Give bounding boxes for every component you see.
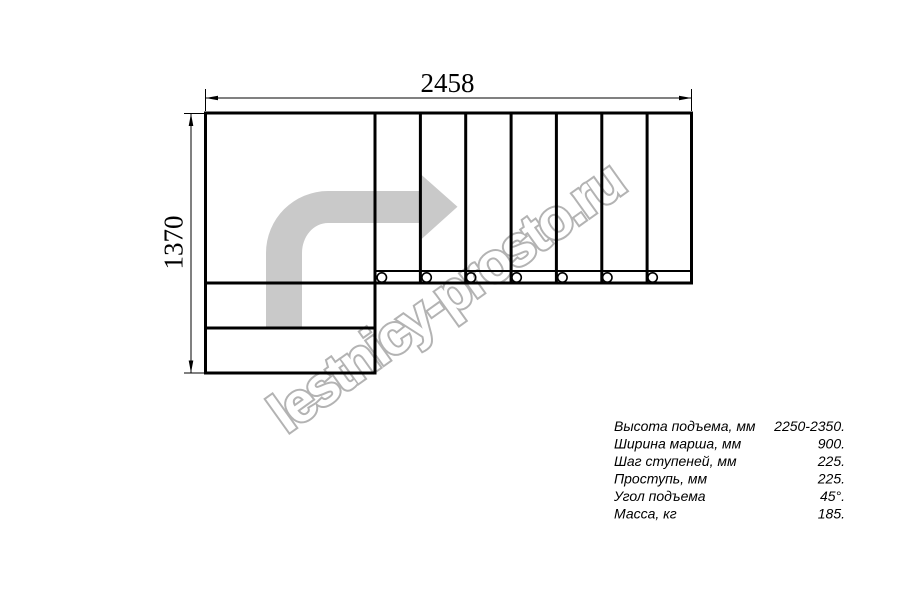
svg-text:Масса, кг: Масса, кг	[614, 506, 677, 522]
svg-text:2250-2350.: 2250-2350.	[773, 418, 845, 434]
svg-text:Высота подъема, мм: Высота подъема, мм	[614, 418, 756, 434]
svg-text:Угол подъема: Угол подъема	[613, 488, 706, 504]
svg-text:225.: 225.	[817, 453, 845, 469]
svg-text:2458: 2458	[421, 68, 475, 98]
svg-text:1370: 1370	[159, 216, 189, 270]
svg-text:225.: 225.	[817, 471, 845, 487]
svg-text:185.: 185.	[818, 506, 845, 522]
svg-text:Ширина марша, мм: Ширина марша, мм	[614, 436, 742, 452]
svg-text:Проступь, мм: Проступь, мм	[614, 471, 708, 487]
svg-text:45°.: 45°.	[820, 488, 845, 504]
svg-text:Шаг ступеней, мм: Шаг ступеней, мм	[614, 453, 737, 469]
svg-text:900.: 900.	[818, 436, 845, 452]
